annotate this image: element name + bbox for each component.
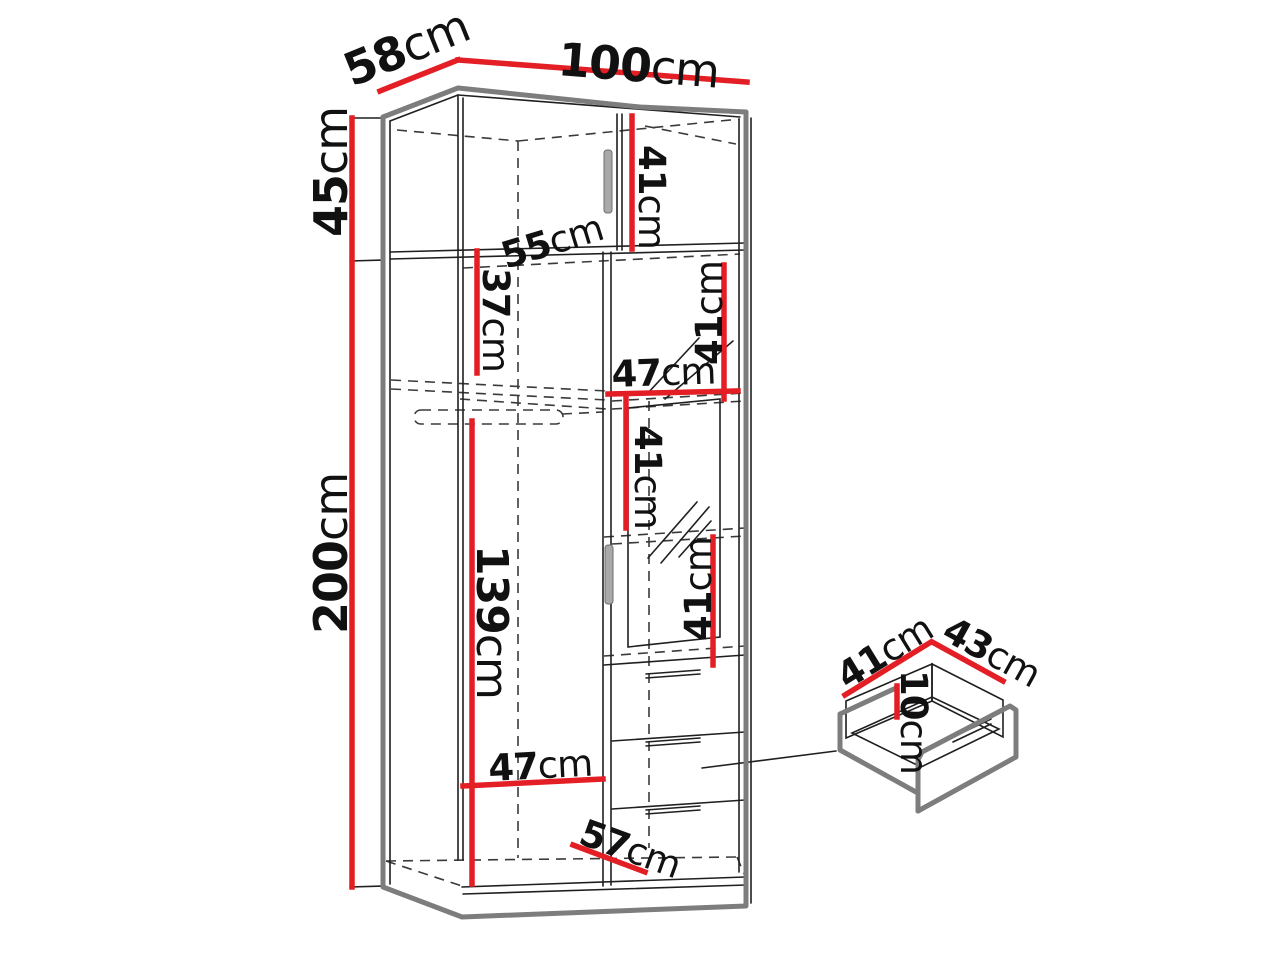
drawer-handle-slot-3 bbox=[646, 806, 700, 814]
wardrobe-outline bbox=[383, 88, 746, 917]
main-door-handle bbox=[605, 545, 613, 604]
drawer-detail-leader bbox=[702, 751, 836, 768]
tick-45 bbox=[350, 260, 384, 261]
top-door-handle bbox=[604, 150, 612, 213]
floor-left-diagonal bbox=[386, 861, 462, 886]
top-inner-edge-right bbox=[458, 95, 740, 117]
dim-drawer-width: 43cm bbox=[936, 608, 1048, 696]
dim-shelf-gap: 37cm bbox=[474, 268, 517, 372]
dim-drawer-height: 10cm bbox=[892, 670, 935, 774]
dim-top-inner-height: 41cm bbox=[630, 145, 673, 249]
hanging-rod bbox=[414, 410, 563, 424]
dim-right-mid-gap: 41cm bbox=[626, 425, 669, 529]
dim-right-inner-width: 47cm bbox=[611, 349, 716, 396]
left-shelf-edge-3 bbox=[460, 399, 607, 409]
diagram-canvas: 100cm 58cm 45cm 200cm 41cm 55cm 37cm 41c… bbox=[0, 0, 1280, 960]
dim-right-lower-gap: 41cm bbox=[677, 537, 720, 641]
dim-left-inner-width: 47cm bbox=[487, 742, 593, 790]
dim-hanging-space: 139cm bbox=[466, 545, 517, 699]
left-shelf-edge-1 bbox=[391, 380, 607, 391]
dim-top-section-height: 45cm bbox=[304, 107, 358, 237]
drawer-handle-slot-2 bbox=[646, 738, 700, 746]
left-shelf-edge-2 bbox=[391, 389, 607, 400]
wardrobe-dimension-diagram: 100cm 58cm 45cm 200cm 41cm 55cm 37cm 41c… bbox=[0, 0, 1280, 960]
plinth-top-edge bbox=[463, 885, 746, 894]
hanging-rod-end bbox=[562, 412, 603, 414]
dim-top-width: 100cm bbox=[556, 32, 721, 98]
drawer-top-shelf-hidden bbox=[604, 646, 745, 656]
tick-bottom bbox=[350, 886, 384, 887]
dim-bottom-depth: 57cm bbox=[574, 811, 686, 887]
floor-back-edge bbox=[386, 857, 737, 861]
top-back-edge-right bbox=[518, 119, 740, 141]
dim-shelf-depth: 55cm bbox=[496, 206, 608, 277]
top-back-edge-inner bbox=[645, 126, 736, 144]
drawer-handle-slot-1 bbox=[646, 670, 700, 678]
dim-total-height: 200cm bbox=[304, 473, 358, 634]
drawer-shelf-front bbox=[604, 655, 745, 665]
dimension-labels: 100cm 58cm 45cm 200cm 41cm 55cm 37cm 41c… bbox=[304, 0, 1047, 887]
